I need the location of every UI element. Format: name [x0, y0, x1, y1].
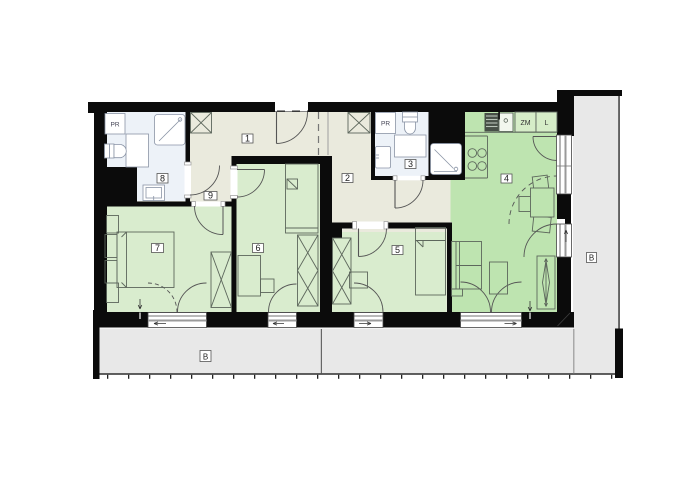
svg-text:1: 1	[245, 134, 250, 144]
svg-text:6: 6	[255, 243, 260, 253]
svg-text:8: 8	[160, 174, 165, 184]
svg-text:B: B	[589, 254, 594, 263]
svg-text:5: 5	[395, 245, 400, 255]
svg-text:PR: PR	[381, 121, 390, 128]
svg-text:B: B	[203, 353, 208, 362]
svg-text:PR: PR	[110, 122, 119, 129]
svg-text:3: 3	[408, 159, 413, 169]
svg-text:ZM: ZM	[520, 120, 530, 127]
svg-text:7: 7	[155, 243, 160, 253]
svg-text:L: L	[545, 120, 549, 127]
svg-text:2: 2	[345, 173, 350, 183]
svg-text:4: 4	[504, 174, 509, 184]
svg-text:9: 9	[208, 191, 213, 201]
